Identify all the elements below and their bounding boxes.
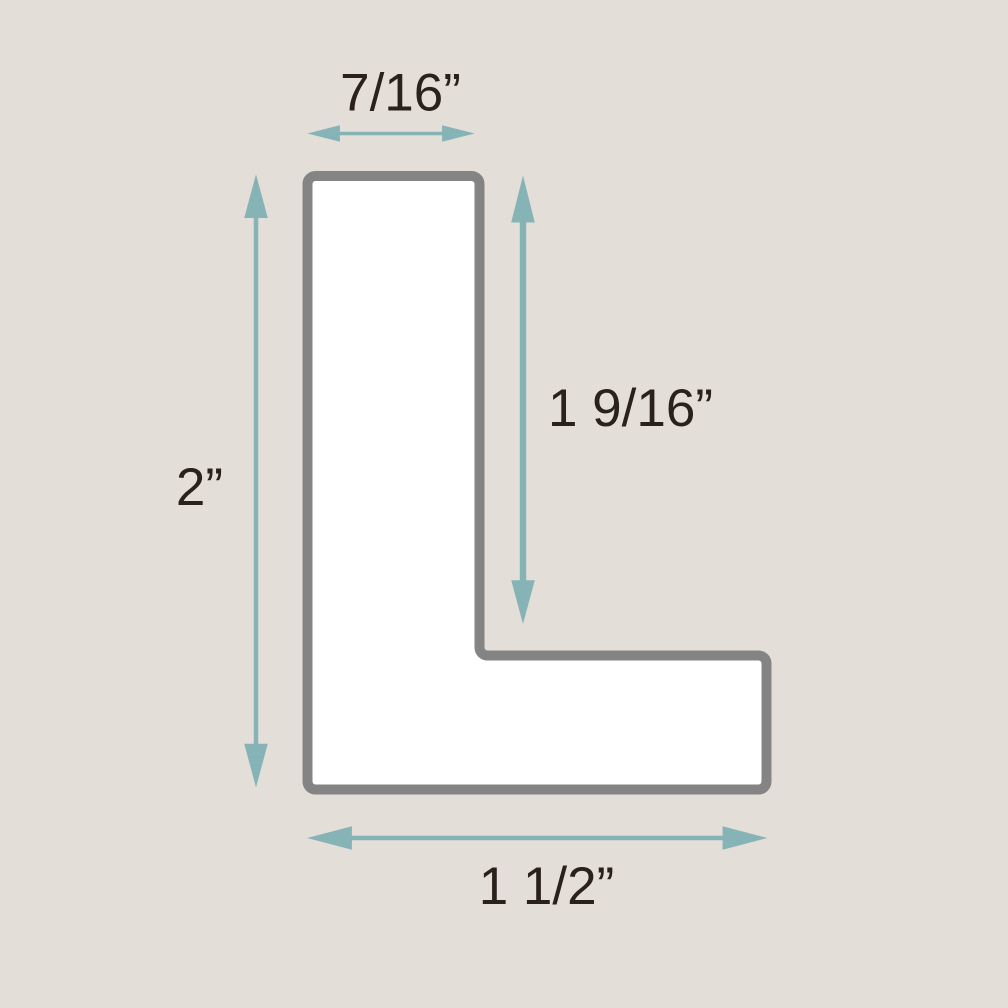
svg-text:2”: 2” xyxy=(176,458,223,517)
svg-text:1 1/2”: 1 1/2” xyxy=(479,857,615,916)
svg-text:1 9/16”: 1 9/16” xyxy=(548,379,713,438)
svg-text:7/16”: 7/16” xyxy=(340,64,461,123)
